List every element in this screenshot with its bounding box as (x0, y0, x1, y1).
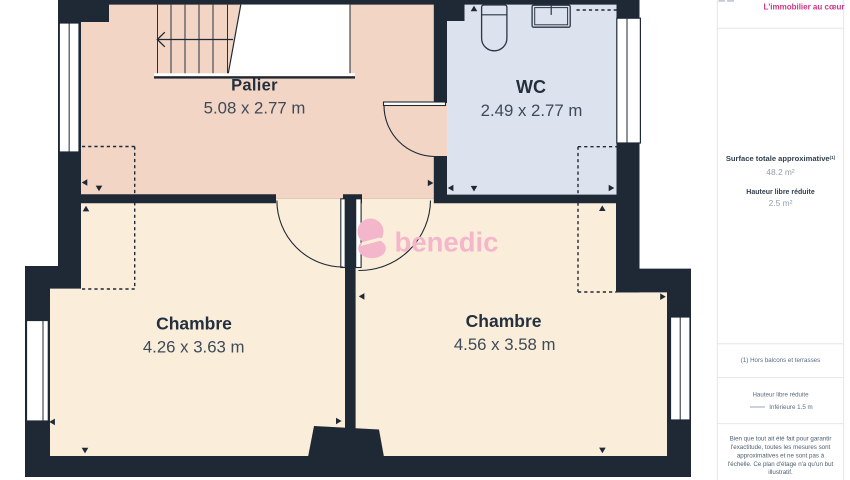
svg-text:4.56 x 3.58 m: 4.56 x 3.58 m (454, 335, 556, 354)
svg-text:4.26 x 3.63 m: 4.26 x 3.63 m (143, 338, 245, 357)
svg-text:Inférieure 1.5 m: Inférieure 1.5 m (769, 404, 812, 411)
svg-text:Hauteur libre réduite: Hauteur libre réduite (746, 189, 815, 196)
svg-text:48.2 m²: 48.2 m² (766, 167, 795, 177)
svg-text:WC: WC (516, 77, 546, 97)
svg-text:Hauteur libre réduite: Hauteur libre réduite (752, 392, 809, 399)
svg-text:Palier: Palier (231, 77, 278, 95)
svg-text:Surface totale approximative(1: Surface totale approximative(1) (726, 154, 836, 163)
svg-text:2.49 x 2.77 m: 2.49 x 2.77 m (481, 101, 583, 120)
svg-text:benedic: benedic (395, 227, 499, 258)
svg-text:illustratif.: illustratif. (768, 469, 793, 476)
svg-text:Chambre: Chambre (466, 311, 542, 331)
svg-text:l'échelle. Ce plan d'étage n'a: l'échelle. Ce plan d'étage n'a qu'un but (728, 461, 834, 468)
svg-text:Chambre: Chambre (156, 313, 232, 333)
svg-text:Bien que tout ait été fait pou: Bien que tout ait été fait pour garantir (730, 435, 832, 442)
svg-text:(1) Hors balcons et terrasses: (1) Hors balcons et terrasses (741, 357, 820, 364)
svg-text:5.08 x 2.77 m: 5.08 x 2.77 m (204, 99, 306, 118)
svg-text:L'immobilier au cœur: L'immobilier au cœur (763, 3, 844, 12)
svg-text:l'exactitude, toutes les mesur: l'exactitude, toutes les mesures sont (731, 444, 831, 451)
svg-text:2.5 m²: 2.5 m² (769, 198, 793, 208)
svg-text:approximatives et ne sont pas: approximatives et ne sont pas à (737, 453, 825, 460)
